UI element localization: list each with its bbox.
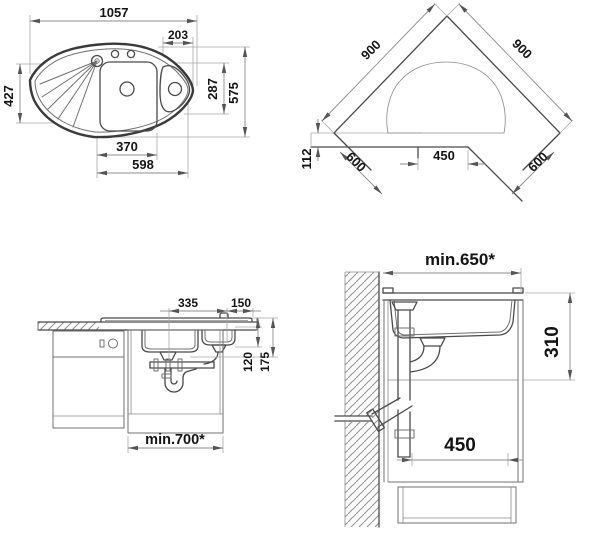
- dim-front-offset: 112: [300, 149, 314, 170]
- dim-cabinet-opening: 450: [433, 148, 455, 163]
- trap-nut: [162, 374, 171, 378]
- countertop: [38, 318, 257, 330]
- wall: [345, 272, 379, 527]
- small-drain-flange: [212, 345, 226, 352]
- pipe-clamp: [166, 359, 170, 371]
- dim-main-bowl-width: 370: [116, 139, 138, 154]
- dim-left-wall-run: 900: [358, 37, 384, 63]
- pipe-clamp: [178, 359, 182, 371]
- counter-section: [383, 288, 523, 300]
- dishwasher-cabinet: [53, 331, 124, 428]
- dim-trap-level-2: 175: [258, 352, 272, 372]
- u-trap: [165, 368, 196, 392]
- dim-left-counter-depth: 600: [343, 149, 369, 175]
- dim-front-width: 598: [132, 157, 154, 172]
- dishwasher-dial: [109, 339, 118, 348]
- dishwasher-button: [100, 340, 104, 347]
- sink-deck-edge: [101, 313, 252, 322]
- technical-drawing: 1057 203 427 575 287 370 598 9: [0, 0, 600, 539]
- drain-flange: [392, 302, 417, 310]
- dim-right-wall-run: 900: [509, 36, 535, 62]
- dim-overall-depth: 575: [226, 82, 241, 104]
- bowl-section: [390, 300, 515, 338]
- dim-rim-to-outlet: 310: [542, 326, 563, 358]
- dim-right-bowl-inset: 203: [168, 28, 188, 42]
- rim-lip-left: [383, 288, 393, 293]
- rim-lip-right: [513, 288, 523, 293]
- pipe-clamp: [154, 359, 158, 371]
- plinth: [398, 487, 516, 523]
- dim-right-offset: 150: [231, 296, 251, 310]
- view-side-section: min.650* 310 450: [300, 250, 600, 539]
- dim-trap-level-1: 120: [241, 352, 255, 372]
- sink-silhouette: [387, 62, 506, 133]
- bowl-sections: [142, 330, 235, 352]
- dim-cabinet-width-min: min.700*: [145, 432, 205, 448]
- view-corner-layout: 900 900 600 600 450 112: [300, 0, 600, 230]
- dim-outlet-distance: 450: [444, 435, 476, 456]
- side-dimension-lines: [383, 268, 575, 466]
- outlet-flange: [420, 338, 445, 346]
- view-front-section: 335 150 120 175 min.700*: [0, 250, 300, 539]
- dim-right-counter-depth: 600: [525, 149, 551, 175]
- countertop-hatch: [38, 322, 99, 330]
- dim-right-bowl-depth: 287: [205, 78, 220, 100]
- dim-overall-width: 1057: [100, 5, 129, 20]
- dim-counter-depth-min: min.650*: [425, 250, 495, 269]
- dim-left-depth: 427: [1, 85, 16, 107]
- dim-drain-offset: 335: [178, 296, 198, 310]
- view-sink-top: 1057 203 427 575 287 370 598: [0, 0, 300, 240]
